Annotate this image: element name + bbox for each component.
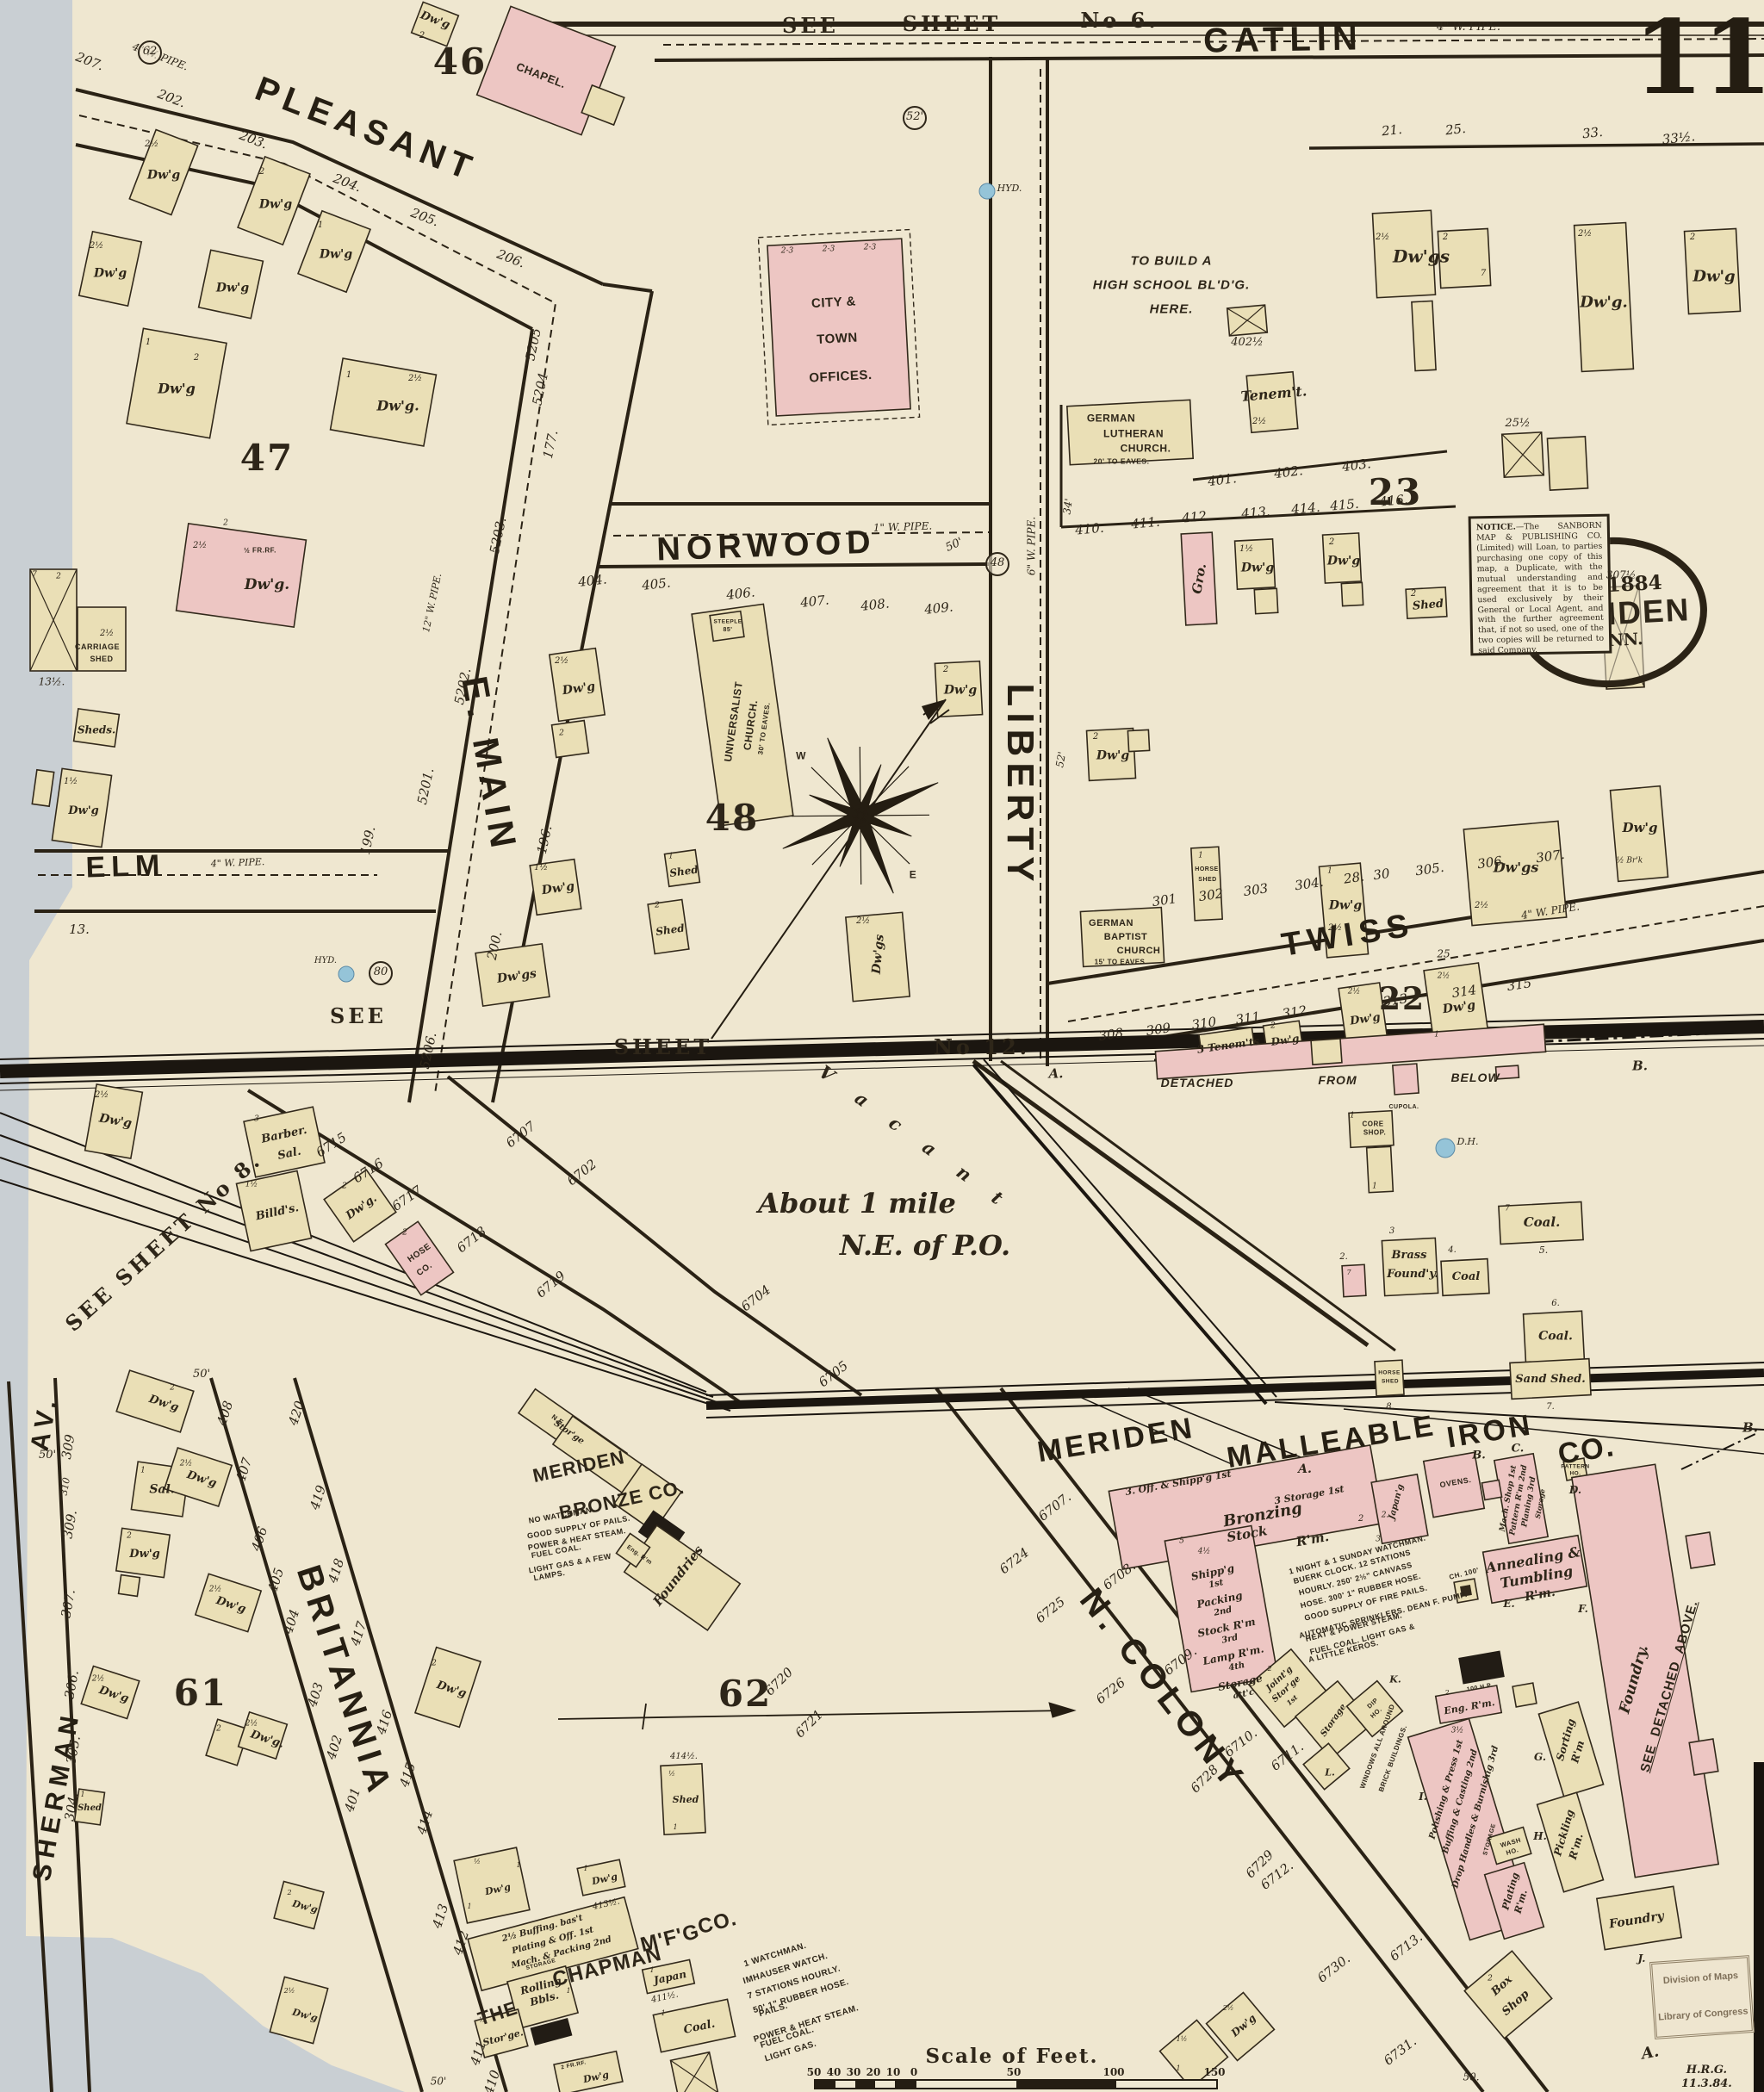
map-label: 2½ (1438, 972, 1450, 980)
map-label: 2 (1443, 233, 1448, 243)
map-label: 2 (194, 354, 199, 363)
map-label: 2-3 (864, 244, 877, 251)
map-label: Dw'g (147, 170, 180, 183)
map-label: 2½ (1475, 902, 1488, 911)
map-label: Brass (1392, 1250, 1427, 1262)
map-label: 1 (1434, 1031, 1439, 1039)
map-label: 1" W. PIPE. (873, 521, 933, 534)
cupola (1393, 1064, 1419, 1095)
saloon-label: Sal. (149, 1484, 174, 1497)
map-label: SHOP. (1363, 1130, 1386, 1138)
map-label: HYD. (314, 957, 337, 966)
map-label: 413. (1241, 506, 1271, 522)
detached-from-below: DETACHED (1161, 1077, 1234, 1089)
map-label: ½ FR.RF. (244, 548, 276, 556)
map-label: 2 (1690, 233, 1695, 243)
map-label: 1 (140, 1467, 146, 1474)
map-label: 6" W. PIPE. (1027, 517, 1038, 575)
map-label: TOWN (817, 332, 858, 348)
map-label: 2. (1382, 1512, 1389, 1519)
map-label: 2½ (193, 542, 207, 551)
map-label: 1 (346, 371, 351, 381)
map-label: E (910, 869, 917, 880)
map-label: 20' TO EAVES. (1094, 457, 1150, 465)
map-label: 2. (1339, 1253, 1348, 1263)
building (1127, 729, 1149, 751)
map-label: 2 (1267, 1666, 1271, 1673)
map-label: L. (1325, 1768, 1335, 1778)
map-label: W (796, 750, 806, 761)
city-town-offices (758, 230, 919, 425)
map-label: 1½ (1239, 545, 1253, 555)
map-label: LUTHERAN (1103, 428, 1164, 439)
german-lutheran-label: GERMAN (1087, 413, 1135, 424)
map-label: 2½ (209, 1586, 221, 1593)
scale-segment (895, 2081, 916, 2088)
map-label: Shed (673, 1795, 699, 1805)
map-label: 2½ (180, 1460, 192, 1468)
map-label: 30 (1372, 867, 1390, 883)
map-label: HORSE (1195, 866, 1218, 873)
map-label: 411. (1131, 516, 1161, 532)
map-label: 7 (32, 571, 37, 579)
block-47: 47 (240, 440, 294, 476)
scale-tick: 20 (866, 2067, 881, 2077)
map-label: 2½ (1578, 230, 1592, 239)
map-label: 3 (254, 1115, 259, 1123)
map-label: 2-3 (781, 247, 794, 255)
map-label: 1 (516, 1862, 520, 1869)
map-label: 402½ (1231, 337, 1263, 349)
map-label: 2 (1270, 1022, 1276, 1030)
map-label: 2½ (1223, 2005, 1234, 2012)
map-label: Dw'g (129, 1549, 160, 1561)
building (710, 611, 744, 642)
map-label: F. (1578, 1604, 1588, 1614)
surveyor-initials: H.R.G. (1681, 2064, 1732, 2077)
map-label: 7 (1346, 1269, 1351, 1276)
map-label: 34' (1061, 498, 1074, 515)
map-label: 2 (216, 1725, 221, 1733)
map-label: 1 (1327, 867, 1332, 875)
map-label: SHEET (903, 14, 1001, 34)
map-label: Shed (78, 1804, 102, 1814)
map-label: 414½. (670, 1753, 698, 1762)
map-label: 6. (1551, 1300, 1560, 1309)
building (1547, 437, 1587, 490)
map-label: 2½ (92, 1675, 104, 1683)
map-label: Dw'g (944, 685, 977, 698)
map-label: 2 (943, 666, 948, 675)
loc-line1: Division of Maps (1662, 1971, 1738, 1987)
block-61: 61 (174, 1675, 227, 1711)
scale-tick: 50 (807, 2067, 822, 2077)
circle-48: 48 (985, 552, 1009, 576)
block-48: 48 (705, 800, 759, 836)
pink-dwelling-label: Dw'g. (245, 578, 289, 593)
map-label: 1 (80, 1791, 84, 1798)
map-label: Dw'gs (1494, 861, 1539, 876)
map-label: 404. (578, 573, 608, 589)
map-label: 2 (1358, 1515, 1363, 1524)
map-label: 1 (146, 338, 151, 348)
map-label: 7 (1481, 270, 1486, 279)
map-label: 409. (924, 600, 954, 617)
map-label: ½ (479, 2017, 486, 2024)
map-label: 2½ (245, 1720, 258, 1728)
map-label: 2 (1411, 590, 1416, 599)
map-label: 2 (170, 1384, 175, 1392)
map-label: Sheds. (78, 725, 115, 736)
map-label: Shed (1412, 599, 1444, 613)
map-label: 2 (56, 573, 61, 580)
map-label: 52' (1054, 751, 1068, 768)
map-label: B. (1742, 1422, 1758, 1435)
map-label: 1½ (245, 1181, 258, 1189)
map-label: 2½ (100, 630, 114, 639)
map-label: 2½ (284, 1988, 295, 1995)
map-label: ½ (474, 1859, 481, 1865)
street-elm: ELM (85, 850, 166, 882)
building (1686, 1532, 1715, 1568)
map-label: 1 (566, 1988, 570, 1995)
map-label: HO. (1569, 1470, 1581, 1476)
building (1512, 1683, 1537, 1707)
map-label: 416. (1379, 494, 1409, 510)
brass-foundry (1382, 1238, 1438, 1295)
map-label: BELOW (1450, 1071, 1500, 1083)
map-label: STEEPLE (713, 618, 742, 624)
map-label: 1 (1198, 852, 1203, 860)
map-label: Dw'g (1329, 900, 1362, 913)
map-label: 2½ (1376, 233, 1389, 243)
map-label: 2 (559, 729, 564, 737)
map-label: 2 (1329, 538, 1334, 548)
building (1481, 1480, 1501, 1499)
scale-of-feet: Scale of Feet. 5040302010050100150 (810, 2046, 1249, 2091)
map-label: Dw'g (259, 199, 292, 212)
map-label: K. (1389, 1675, 1401, 1685)
map-label: PATTERN (1561, 1463, 1589, 1469)
map-label: 2 (287, 1890, 291, 1896)
map-label: 4" W. PIPE. (1437, 22, 1500, 34)
scale-segment (816, 2081, 835, 2088)
map-label: 414. (1291, 501, 1321, 518)
scale-tick: 10 (886, 2067, 901, 2077)
building (1367, 1146, 1394, 1192)
map-label: 5 (1179, 1537, 1184, 1545)
building (1689, 1739, 1718, 1775)
map-label: 2-3 (823, 245, 835, 253)
scale-segment (875, 2081, 895, 2088)
publisher-notice: NOTICE.—The SANBORN MAP & PUBLISHING CO.… (1469, 514, 1612, 656)
map-label: 33. (1581, 126, 1603, 141)
map-label: 15' TO EAVES (1095, 959, 1146, 967)
map-label: BAPTIST (1104, 932, 1148, 942)
scale-segment (835, 2081, 855, 2088)
city-town-offices-label: CITY & (811, 295, 857, 311)
map-label: 85' (724, 627, 733, 634)
map-label: Dw'g (216, 282, 249, 295)
horse-shed (1191, 847, 1222, 921)
map-label: SHED (90, 655, 113, 664)
map-label: Dw'g (1327, 556, 1360, 568)
building (1412, 301, 1436, 370)
map-label: 2 (402, 1229, 407, 1237)
map-label: FROM (1318, 1074, 1357, 1086)
block-62: 62 (718, 1676, 772, 1712)
map-label: 2½ (1328, 924, 1342, 934)
map-label: N.E. of P.O. (840, 1232, 1010, 1261)
scale-tick: 100 (1102, 2067, 1124, 2077)
map-label: 3 (1389, 1227, 1394, 1237)
map-label: 2½ (90, 242, 103, 251)
map-label: 408. (860, 597, 891, 613)
map-label: 4. (1448, 1246, 1457, 1256)
street-catlin: CATLIN (1203, 21, 1363, 58)
map-label: ½ (668, 1771, 675, 1778)
map-label: 4½ (1198, 1548, 1210, 1555)
scale-segment (916, 2081, 1016, 2088)
map-label: 4" W. PIPE. (211, 857, 265, 869)
map-label: No 6. (1080, 10, 1158, 31)
map-label: 25½ (1505, 418, 1530, 430)
map-label: CARRIAGE (75, 643, 120, 652)
map-label: SHED (1198, 877, 1216, 884)
map-label: 13½. (39, 677, 65, 688)
circle-62: 62 (138, 40, 162, 65)
map-label: 7. (1546, 1403, 1555, 1412)
map-label: H. (1533, 1831, 1547, 1841)
map-label: Dw'g (320, 249, 352, 262)
map-label: 410. (1075, 522, 1105, 538)
map-label: Dw'g (158, 382, 196, 397)
map-label: A. (1298, 1463, 1312, 1475)
map-label: HORSE (1378, 1369, 1401, 1375)
map-label: D. (1569, 1485, 1581, 1495)
map-label: Dw'g. (376, 400, 419, 414)
map-label: HYD. (997, 183, 1022, 194)
street-norwood: NORWOOD (656, 526, 877, 567)
map-label: 2½ (145, 140, 158, 150)
coal-label: Coal. (1524, 1216, 1561, 1230)
building (119, 1575, 140, 1597)
map-label: 21. (1381, 123, 1402, 139)
building (32, 770, 53, 806)
map-label: 1 (583, 1865, 587, 1872)
see-sheet-6: SEE (782, 16, 839, 36)
scale-tick: 50 (1007, 2067, 1022, 2077)
map-label: Dw'g. (1580, 295, 1627, 312)
map-label: 1 (673, 1824, 677, 1831)
pink-dwelling (177, 524, 307, 627)
circle-52: 52' (903, 106, 927, 130)
building (1254, 588, 1277, 613)
block-46: 46 (433, 44, 487, 80)
survey-date: 11.3.84. (1681, 2077, 1732, 2091)
map-label: 3½ (1451, 1727, 1463, 1735)
map-label: J. (1638, 1953, 1646, 1964)
map-label: 1½ (64, 778, 78, 787)
map-label: 1½ (1177, 2036, 1188, 2043)
map-label: 2 (1444, 1690, 1449, 1697)
map-label: 1 (649, 1967, 654, 1974)
scale-title: Scale of Feet. (925, 2046, 1098, 2066)
scale-bar (814, 2079, 1218, 2089)
map-label: 2 (342, 1183, 347, 1190)
map-label: 2 (432, 1660, 437, 1667)
map-label: 50. (1463, 2072, 1479, 2083)
scale-segment (855, 2081, 875, 2088)
building (1311, 1039, 1342, 1065)
map-label: 3 (1376, 1536, 1381, 1543)
map-label: E. (1503, 1598, 1514, 1609)
loc-line2: Library of Congress (1658, 2007, 1748, 2024)
map-label: 1 (467, 1903, 471, 1910)
map-label: 2 (1488, 1975, 1493, 1983)
map-label: Dw'g (94, 268, 127, 281)
scale-tick: 150 (1203, 2067, 1225, 2077)
map-label: No 12. (934, 1037, 1030, 1058)
map-label: A. (1049, 1068, 1064, 1081)
scale-tick: 0 (910, 2067, 917, 2077)
building (1342, 1264, 1366, 1296)
map-label: 307½. (1606, 570, 1639, 581)
circle-80: 80 (369, 961, 393, 985)
map-label: CHURCH. (1121, 443, 1171, 454)
library-of-congress-stamp: Division of Maps Library of Congress (1649, 1955, 1755, 2039)
street-liberty: LIBERTY (1001, 683, 1039, 887)
map-label: 406. (726, 586, 756, 602)
sheet-number: 11 (1633, 7, 1764, 109)
map-label: 2½ (856, 917, 870, 927)
sanborn-map-sheet: 11 Aug.1884 MERIDEN CONN. NOTICE.—The SA… (0, 0, 1764, 2092)
map-label: Dw'g (1693, 270, 1735, 286)
map-label: 2½ (408, 375, 422, 384)
map-label: Dw'g (1096, 750, 1129, 763)
map-label: 2 (259, 168, 264, 177)
map-label: I. (1419, 1791, 1427, 1802)
map-label: A. (1640, 2044, 1660, 2062)
german-baptist-label: GERMAN (1089, 918, 1134, 928)
map-canvas (0, 0, 1764, 2092)
map-label: Dw'gs (1393, 248, 1450, 266)
map-label: 50' (431, 2076, 447, 2088)
map-label: 1 (1372, 1183, 1377, 1190)
scan-sliver (1754, 1762, 1764, 2092)
map-label: Coal (1452, 1271, 1480, 1283)
map-label: SHEET (614, 1037, 712, 1058)
map-label: 415. (1330, 498, 1360, 514)
map-label: 1 (668, 853, 674, 860)
building (1341, 582, 1363, 605)
map-label: 2½ (1252, 418, 1266, 427)
block-22: 22 (1379, 984, 1425, 1015)
map-label: Dw'g (68, 805, 99, 817)
map-label: 2 (655, 902, 660, 909)
map-label: 1½ (534, 864, 548, 873)
map-label: 2 (1093, 733, 1098, 742)
map-label: CORE (1362, 1121, 1383, 1129)
notice-body: —The SANBORN MAP & PUBLISHING CO. (Limit… (1476, 521, 1604, 656)
map-label: 25 (1437, 949, 1450, 960)
map-label: 2½ (555, 657, 568, 667)
map-label: 2 (223, 519, 228, 527)
hydrant-dot (339, 966, 354, 982)
map-label: G. (1534, 1752, 1546, 1762)
map-label: CHURCH (1117, 946, 1161, 956)
map-label: 7 (1505, 1205, 1510, 1213)
scale-tick: 40 (827, 2067, 842, 2077)
map-label: 407. (800, 593, 830, 610)
map-label: B. (1632, 1060, 1648, 1073)
map-label: 25. (1444, 122, 1466, 138)
map-label: ½ Br'k (1617, 857, 1643, 865)
notice-title: NOTICE. (1476, 522, 1516, 532)
hydrant-dot (1436, 1139, 1455, 1158)
map-label: 2½ (1348, 988, 1360, 996)
map-label: 50' (193, 1369, 210, 1381)
map-label: 5. (1539, 1245, 1549, 1256)
surveyor-credit: H.R.G. 11.3.84. (1681, 2064, 1732, 2092)
map-label: C. (1512, 1443, 1525, 1455)
map-label: 13. (69, 923, 90, 937)
map-label: 405. (642, 576, 672, 593)
map-label: 1 (661, 2010, 665, 2017)
map-label: Dw'g (1622, 822, 1657, 835)
map-label: 2½ (95, 1091, 109, 1101)
see-sheet-12: SEE (330, 1006, 387, 1027)
scale-segment (1116, 2081, 1216, 2088)
building (1227, 305, 1268, 336)
map-label: Coal. (1538, 1331, 1573, 1344)
map-label: Dw'g (1241, 562, 1274, 575)
map-label: SHED (1382, 1378, 1399, 1384)
map-label: Found'y. (1387, 1269, 1438, 1281)
map-label: 2 (127, 1532, 132, 1540)
map-label: D.H. (1457, 1137, 1478, 1147)
high-school-note: TO BUILD A (1131, 255, 1213, 268)
carriage-shed (30, 569, 77, 671)
map-label: 412. (1182, 510, 1212, 526)
building (1502, 432, 1544, 477)
map-label: 28. (1343, 871, 1365, 887)
hydrant-dot (979, 183, 995, 199)
map-label: Sand Shed. (1515, 1374, 1586, 1386)
map-label: B. (1472, 1450, 1486, 1462)
map-label: 8. (1386, 1403, 1394, 1412)
map-label: 1 (1350, 1112, 1355, 1120)
map-label: 1 (1176, 2065, 1180, 2072)
scale-segment (1016, 2081, 1116, 2088)
building (552, 721, 589, 758)
one-mile-note: About 1 mile (758, 1189, 956, 1219)
scale-tick: 30 (847, 2067, 861, 2077)
map-label: 1 (318, 221, 323, 231)
map-label: 2 (419, 32, 425, 41)
map-label: CUPOLA. (1389, 1104, 1419, 1111)
map-label: HIGH SCHOOL BL'D'G. (1093, 279, 1251, 292)
map-label: HERE. (1150, 303, 1194, 316)
